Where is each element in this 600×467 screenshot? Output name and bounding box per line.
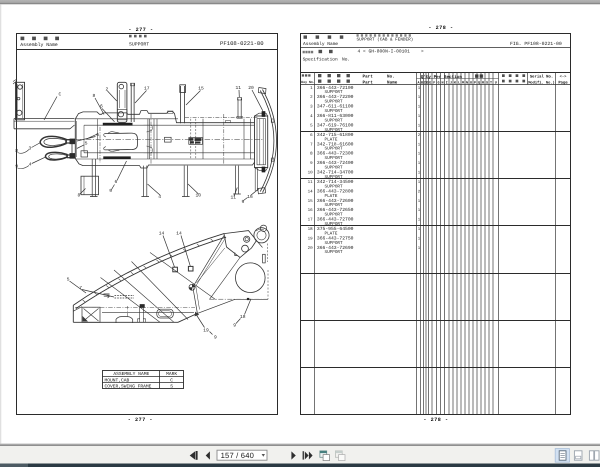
svg-text:Serial No.: Serial No. <box>530 75 553 80</box>
svg-text:14: 14 <box>176 230 182 236</box>
svg-text:U: U <box>495 81 497 86</box>
svg-text:Part: Part <box>363 81 374 86</box>
svg-text:FIG. PF108-0221-00: FIG. PF108-0221-00 <box>510 41 562 47</box>
svg-text:- 277 -: - 277 - <box>128 417 153 423</box>
svg-text:No.: No. <box>342 58 350 63</box>
svg-text:5: 5 <box>85 140 88 146</box>
svg-text:7: 7 <box>79 285 82 291</box>
svg-text:COVER,SWING FRAME: COVER,SWING FRAME <box>105 383 152 389</box>
svg-text:H: H <box>441 81 443 86</box>
svg-text:6: 6 <box>100 103 103 109</box>
svg-text:10: 10 <box>196 192 202 198</box>
svg-text:S: S <box>486 81 488 86</box>
svg-text:18: 18 <box>308 227 314 232</box>
svg-text:G: G <box>437 81 439 86</box>
svg-text:MOUNT,CAB: MOUNT,CAB <box>105 377 130 383</box>
svg-text:6: 6 <box>96 132 99 138</box>
svg-text:Page: Page <box>558 80 568 85</box>
svg-text:17: 17 <box>308 218 314 223</box>
svg-text:19: 19 <box>308 236 314 241</box>
svg-text:Q: Q <box>478 81 480 86</box>
svg-text:11: 11 <box>236 85 242 91</box>
svg-text:3: 3 <box>29 145 32 151</box>
svg-text:B: B <box>421 81 423 86</box>
svg-text:O: O <box>470 81 472 86</box>
svg-text:18: 18 <box>240 314 246 320</box>
svg-text:N: N <box>466 81 468 86</box>
svg-text:Part: Part <box>363 75 374 80</box>
svg-text:- 278 -: - 278 - <box>428 25 453 31</box>
svg-text:Q'ty Per Section: Q'ty Per Section <box>421 74 463 80</box>
svg-text:Name: Name <box>387 81 398 86</box>
svg-text:11: 11 <box>308 180 314 185</box>
svg-text:J: J <box>450 81 452 86</box>
svg-text:20: 20 <box>308 246 314 251</box>
svg-text:5: 5 <box>67 276 70 282</box>
svg-text:20: 20 <box>248 85 254 91</box>
svg-text:No.: No. <box>387 75 395 80</box>
svg-text:11: 11 <box>231 194 237 200</box>
svg-text:9: 9 <box>233 322 236 328</box>
svg-text:8: 8 <box>93 93 96 99</box>
svg-text:15: 15 <box>308 199 314 204</box>
svg-text:16: 16 <box>247 194 253 200</box>
svg-text:Specification: Specification <box>303 57 338 63</box>
svg-text:4 < GH-800N-I-00101 >: 4 < GH-800N-I-00101 > <box>358 48 424 54</box>
svg-text:C: C <box>59 92 62 98</box>
svg-text:SUPPORT (CAB & FENDER): SUPPORT (CAB & FENDER) <box>357 37 414 43</box>
svg-text:9: 9 <box>214 335 217 341</box>
svg-text:PF108-0221-00: PF108-0221-00 <box>220 40 264 47</box>
svg-text:S: S <box>170 383 173 389</box>
svg-text:14: 14 <box>159 230 165 236</box>
svg-text:SUPPORT: SUPPORT <box>129 42 149 48</box>
svg-text:<->: <-> <box>560 75 568 80</box>
svg-text:L: L <box>458 81 460 86</box>
svg-text:E: E <box>429 81 431 86</box>
svg-text:15: 15 <box>198 85 204 91</box>
svg-text:F: F <box>433 81 435 86</box>
svg-text:4: 4 <box>29 162 32 168</box>
svg-text:MARK: MARK <box>166 371 177 377</box>
svg-text:14: 14 <box>308 189 314 194</box>
svg-text:Assembly Name: Assembly Name <box>303 41 338 47</box>
svg-text:Key No.: Key No. <box>301 80 314 84</box>
svg-text:I: I <box>446 81 448 86</box>
svg-text:M: M <box>462 81 464 86</box>
svg-text:157 / 640: 157 / 640 <box>221 451 254 460</box>
svg-text:10: 10 <box>308 171 314 176</box>
svg-text:Modifi. No.): Modifi. No.) <box>528 80 555 85</box>
svg-text:8: 8 <box>78 192 81 198</box>
svg-text:C: C <box>170 377 173 383</box>
svg-text:SUPPORT: SUPPORT <box>325 250 343 255</box>
svg-text:16: 16 <box>308 208 314 213</box>
svg-text:T: T <box>490 81 492 86</box>
svg-text:- 278 -: - 278 - <box>423 417 448 423</box>
svg-text:17: 17 <box>144 85 150 91</box>
svg-text:D: D <box>426 81 428 86</box>
svg-text:Assembly Name: Assembly Name <box>20 42 58 48</box>
svg-text:P: P <box>474 81 476 86</box>
svg-text:ASSEMBLY NAME: ASSEMBLY NAME <box>113 371 149 377</box>
svg-text:- 277 -: - 277 - <box>128 27 153 33</box>
svg-text:19: 19 <box>203 327 209 333</box>
